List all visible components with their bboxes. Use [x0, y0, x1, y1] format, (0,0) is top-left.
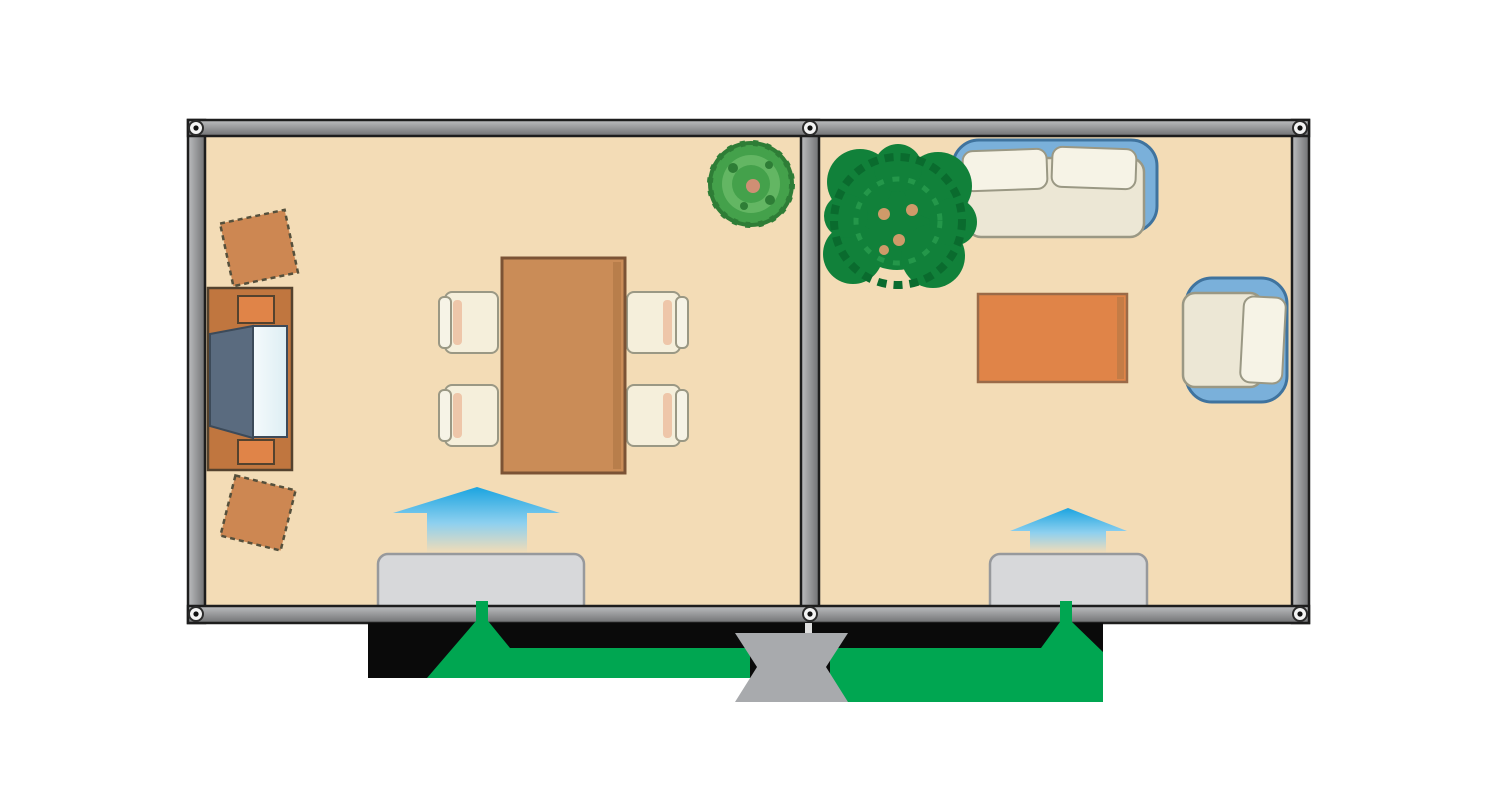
plant-speckle	[765, 161, 773, 169]
chair-bottom-left	[439, 385, 498, 446]
chair-seat	[445, 292, 498, 353]
small-potted-plant	[708, 141, 794, 227]
screw-bottom-middle	[803, 607, 817, 621]
coffee-table-shade	[1117, 297, 1124, 379]
stool-top	[220, 210, 298, 286]
coffee-table-top	[978, 294, 1127, 382]
plant-stem-dot	[879, 245, 889, 255]
chair-backrest	[439, 390, 451, 441]
chair-backrest	[676, 297, 688, 348]
wall-left	[188, 120, 205, 623]
diagram-canvas	[0, 0, 1500, 800]
screw-center	[807, 125, 812, 130]
plant-speckle	[728, 163, 738, 173]
sofa	[953, 140, 1157, 237]
sofa-pillow-right	[1051, 147, 1136, 190]
floor-plan-diagram	[0, 0, 1500, 800]
wall-right	[1292, 120, 1309, 623]
dining-table	[502, 258, 625, 473]
tv-sideboard	[208, 288, 292, 470]
armchair-pillow-shape	[1240, 296, 1286, 384]
chair-seat	[627, 292, 680, 353]
sideboard-bottom-drawer	[238, 440, 274, 464]
sideboard-top-drawer	[238, 296, 274, 323]
air-unit-left	[378, 554, 584, 607]
air-unit-right	[990, 554, 1147, 607]
screw-center	[1297, 611, 1302, 616]
sofa-pillow-left-shape	[962, 149, 1047, 192]
dining-table-shade	[613, 262, 621, 469]
wall-divider	[801, 120, 819, 623]
tv-body	[210, 326, 253, 438]
chair-seat	[445, 385, 498, 446]
chair-top-right	[627, 292, 688, 353]
plant-stem-center	[746, 179, 760, 193]
chair-cushion-strip	[663, 393, 672, 438]
chair-top-left	[439, 292, 498, 353]
stool-top-cushion	[220, 210, 298, 286]
sofa-pillow-left	[962, 149, 1047, 192]
plant-lump	[824, 194, 868, 238]
wall-bottom	[188, 606, 1309, 623]
chair-cushion-strip	[663, 300, 672, 345]
screw-center	[1297, 125, 1302, 130]
chair-bottom-right	[627, 385, 688, 446]
screw-center	[193, 611, 198, 616]
screw-bottom-left	[189, 607, 203, 621]
plant-stem-dot	[906, 204, 918, 216]
dining-table-top	[502, 258, 625, 473]
chair-cushion-strip	[453, 300, 462, 345]
chair-seat	[627, 385, 680, 446]
sofa-pillow-right-shape	[1051, 147, 1136, 190]
wall-top	[188, 120, 1309, 136]
chair-backrest	[439, 297, 451, 348]
screw-top-left	[189, 121, 203, 135]
plant-speckle	[740, 202, 748, 210]
large-potted-plant	[823, 144, 977, 288]
screw-top-middle	[803, 121, 817, 135]
tv-screen	[253, 326, 287, 437]
screw-top-right	[1293, 121, 1307, 135]
screw-bottom-right	[1293, 607, 1307, 621]
screw-center	[193, 125, 198, 130]
chair-backrest	[676, 390, 688, 441]
plant-speckle	[765, 195, 775, 205]
coffee-table	[978, 294, 1127, 382]
plant-stem-dot	[893, 234, 905, 246]
screw-center	[807, 611, 812, 616]
chair-cushion-strip	[453, 393, 462, 438]
armchair-pillow	[1240, 296, 1286, 384]
divider-wall-gap	[805, 623, 812, 634]
armchair	[1183, 278, 1287, 402]
plant-stem-dot	[878, 208, 890, 220]
